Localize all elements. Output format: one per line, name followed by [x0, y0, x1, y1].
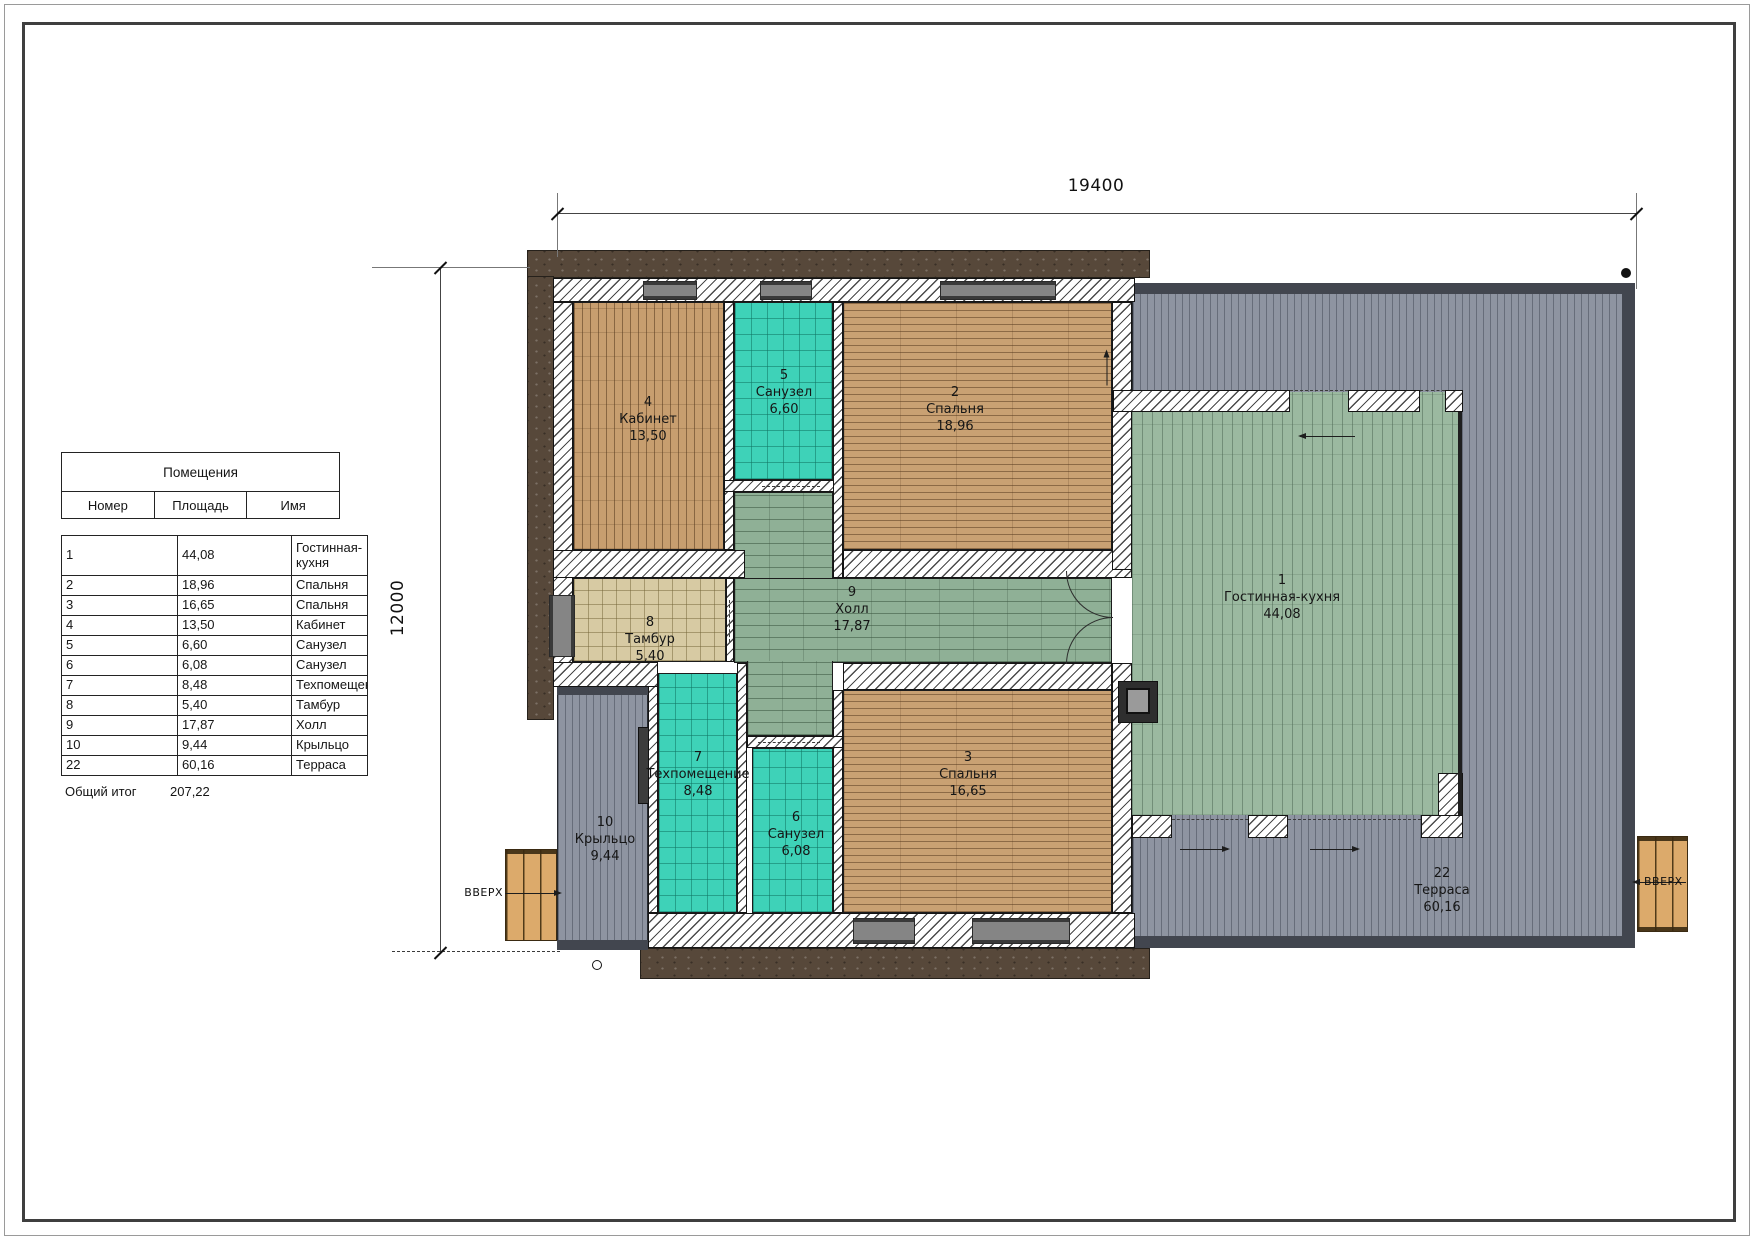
- hall-floor-main: [734, 578, 1112, 663]
- table-row: 8 5,40 Тамбур: [62, 696, 368, 716]
- hall-floor-upper: [734, 492, 833, 580]
- corner-marker: [592, 960, 602, 970]
- wall-tambour-bottom: [553, 662, 658, 687]
- wall-living-top-c: [1445, 390, 1463, 412]
- door-dashed-room8: [729, 600, 730, 642]
- wall-room3-left: [833, 690, 843, 913]
- dimension-height-text: 12000: [388, 558, 408, 658]
- room-label-terrace: 22 Терраса 60,16: [1372, 866, 1512, 917]
- living-room-right-wall-line: [1458, 412, 1462, 815]
- window-bottom-room3: [972, 918, 1070, 944]
- stove-block: [1118, 681, 1158, 723]
- terrace-edge-right: [1622, 283, 1635, 948]
- schedule-total-row: Общий итог 207,22: [65, 784, 345, 799]
- siding-top: [527, 250, 1150, 278]
- dimension-line-top: [557, 213, 1636, 214]
- column-header-area: Площадь: [154, 492, 247, 519]
- wall-living-top-a: [1113, 390, 1290, 412]
- table-row: 9 17,87 Холл: [62, 716, 368, 736]
- table-row: 2 18,96 Спальня: [62, 576, 368, 596]
- stair-left-arrow: [505, 893, 560, 894]
- room-label-porch: 10 Крыльцо 9,44: [540, 815, 670, 866]
- wall-above-room3: [843, 663, 1112, 690]
- table-row: 4 13,50 Кабинет: [62, 616, 368, 636]
- opening-dashed: [1172, 819, 1248, 820]
- room-label-bath5: 5 Санузел 6,60: [724, 368, 844, 419]
- wall-living-top-b: [1348, 390, 1420, 412]
- room-label-bath6: 6 Санузел 6,08: [736, 810, 856, 861]
- terrace-edge-bottom: [1132, 936, 1635, 948]
- opening-dashed: [1420, 390, 1445, 391]
- room-schedule-body: 1 44,08 Гостинная-кухня 2 18,96 Спальня …: [61, 535, 368, 776]
- table-row: 5 6,60 Санузел: [62, 636, 368, 656]
- room-schedule-header: Помещения Номер Площадь Имя: [61, 452, 340, 519]
- drawing-sheet: Помещения Номер Площадь Имя 1 44,08 Гост…: [0, 0, 1754, 1240]
- column-header-name: Имя: [247, 492, 340, 519]
- table-row: 10 9,44 Крыльцо: [62, 736, 368, 756]
- room3-floor: [843, 690, 1112, 913]
- stair-right-label: ВВЕРХ: [1644, 875, 1694, 888]
- arrow-room2-marker: [1107, 352, 1108, 386]
- extension-line-dashed: [392, 951, 560, 952]
- table-row: 1 44,08 Гостинная-кухня: [62, 536, 368, 576]
- room-label-utility: 7 Техпомещение 8,48: [628, 750, 768, 801]
- extension-line: [372, 267, 530, 268]
- hall-floor-lower: [747, 661, 833, 736]
- entry-door-porch: [549, 595, 575, 657]
- window-room5: [760, 281, 812, 300]
- room-label-living: 1 Гостинная-кухня 44,08: [1192, 573, 1372, 624]
- window-bottom-room6: [853, 918, 915, 944]
- total-label: Общий итог: [65, 784, 136, 799]
- extension-line: [1636, 193, 1637, 289]
- room-label-bedroom3: 3 Спальня 16,65: [898, 750, 1038, 801]
- wall-hall-living-upper: [1112, 302, 1132, 570]
- room-label-bedroom2: 2 Спальня 18,96: [885, 385, 1025, 436]
- opening-dashed: [1290, 390, 1348, 391]
- room-label-office: 4 Кабинет 13,50: [578, 395, 718, 446]
- table-row: 7 8,48 Техпомещение: [62, 676, 368, 696]
- door-dashed-room5: [762, 486, 820, 487]
- entry-arrow-terrace-b2: [1310, 849, 1358, 850]
- table-row: 3 16,65 Спальня: [62, 596, 368, 616]
- entry-arrow-terrace-b1: [1180, 849, 1228, 850]
- room-label-hall: 9 Холл 17,87: [792, 585, 912, 636]
- total-value: 207,22: [170, 784, 210, 799]
- schedule-title: Помещения: [62, 453, 340, 492]
- wall-under-room4: [553, 550, 745, 578]
- window-room4: [643, 281, 697, 300]
- door-dashed-room6: [758, 742, 820, 743]
- terrace-edge-top: [1132, 283, 1635, 294]
- siding-bottom: [640, 948, 1150, 979]
- wall-living-bottom-pier2: [1248, 815, 1288, 838]
- window-room2: [940, 281, 1056, 300]
- dimension-width-text: 19400: [1056, 176, 1136, 196]
- wall-living-bottom-pier1: [1132, 815, 1172, 838]
- wall-living-se-corner-b: [1421, 815, 1463, 838]
- corner-marker: [1621, 268, 1631, 278]
- wall-room2-left: [833, 302, 843, 578]
- table-row: 6 6,08 Санузел: [62, 656, 368, 676]
- dimension-line-left: [440, 267, 441, 952]
- table-row: 22 60,16 Терраса: [62, 756, 368, 776]
- porch-edge-top: [557, 687, 648, 695]
- porch-edge-bottom: [557, 940, 648, 950]
- wall-room8-right: [726, 578, 734, 662]
- room-label-tambour: 8 Тамбур 5,40: [590, 615, 710, 666]
- column-header-number: Номер: [62, 492, 155, 519]
- stair-left-label: ВВЕРХ: [448, 886, 503, 899]
- entry-arrow-terrace-top: [1300, 436, 1355, 437]
- extension-line: [557, 193, 558, 257]
- wall-room4-right: [724, 302, 734, 550]
- opening-dashed: [1288, 819, 1421, 820]
